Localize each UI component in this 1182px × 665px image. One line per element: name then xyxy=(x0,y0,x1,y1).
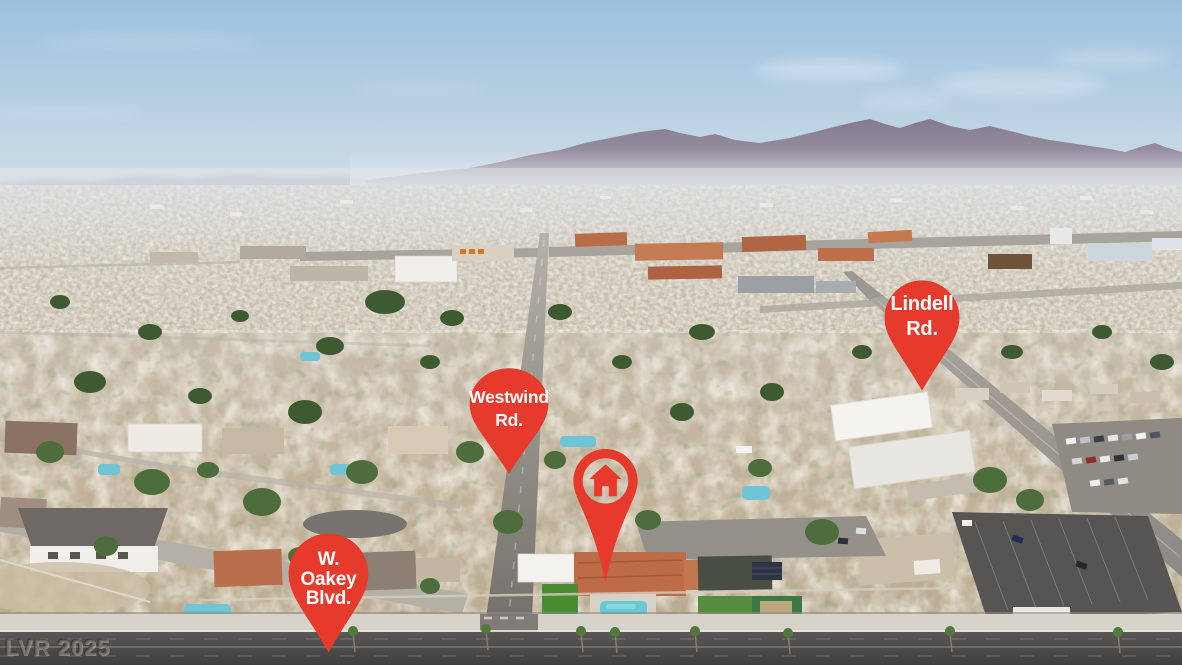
aerial-photo-canvas xyxy=(0,0,1182,665)
watermark: LVR 2025 xyxy=(5,635,110,661)
aerial-photo: Lindell Rd. Westwind Rd. W. Oakey Blvd. … xyxy=(0,0,1182,665)
